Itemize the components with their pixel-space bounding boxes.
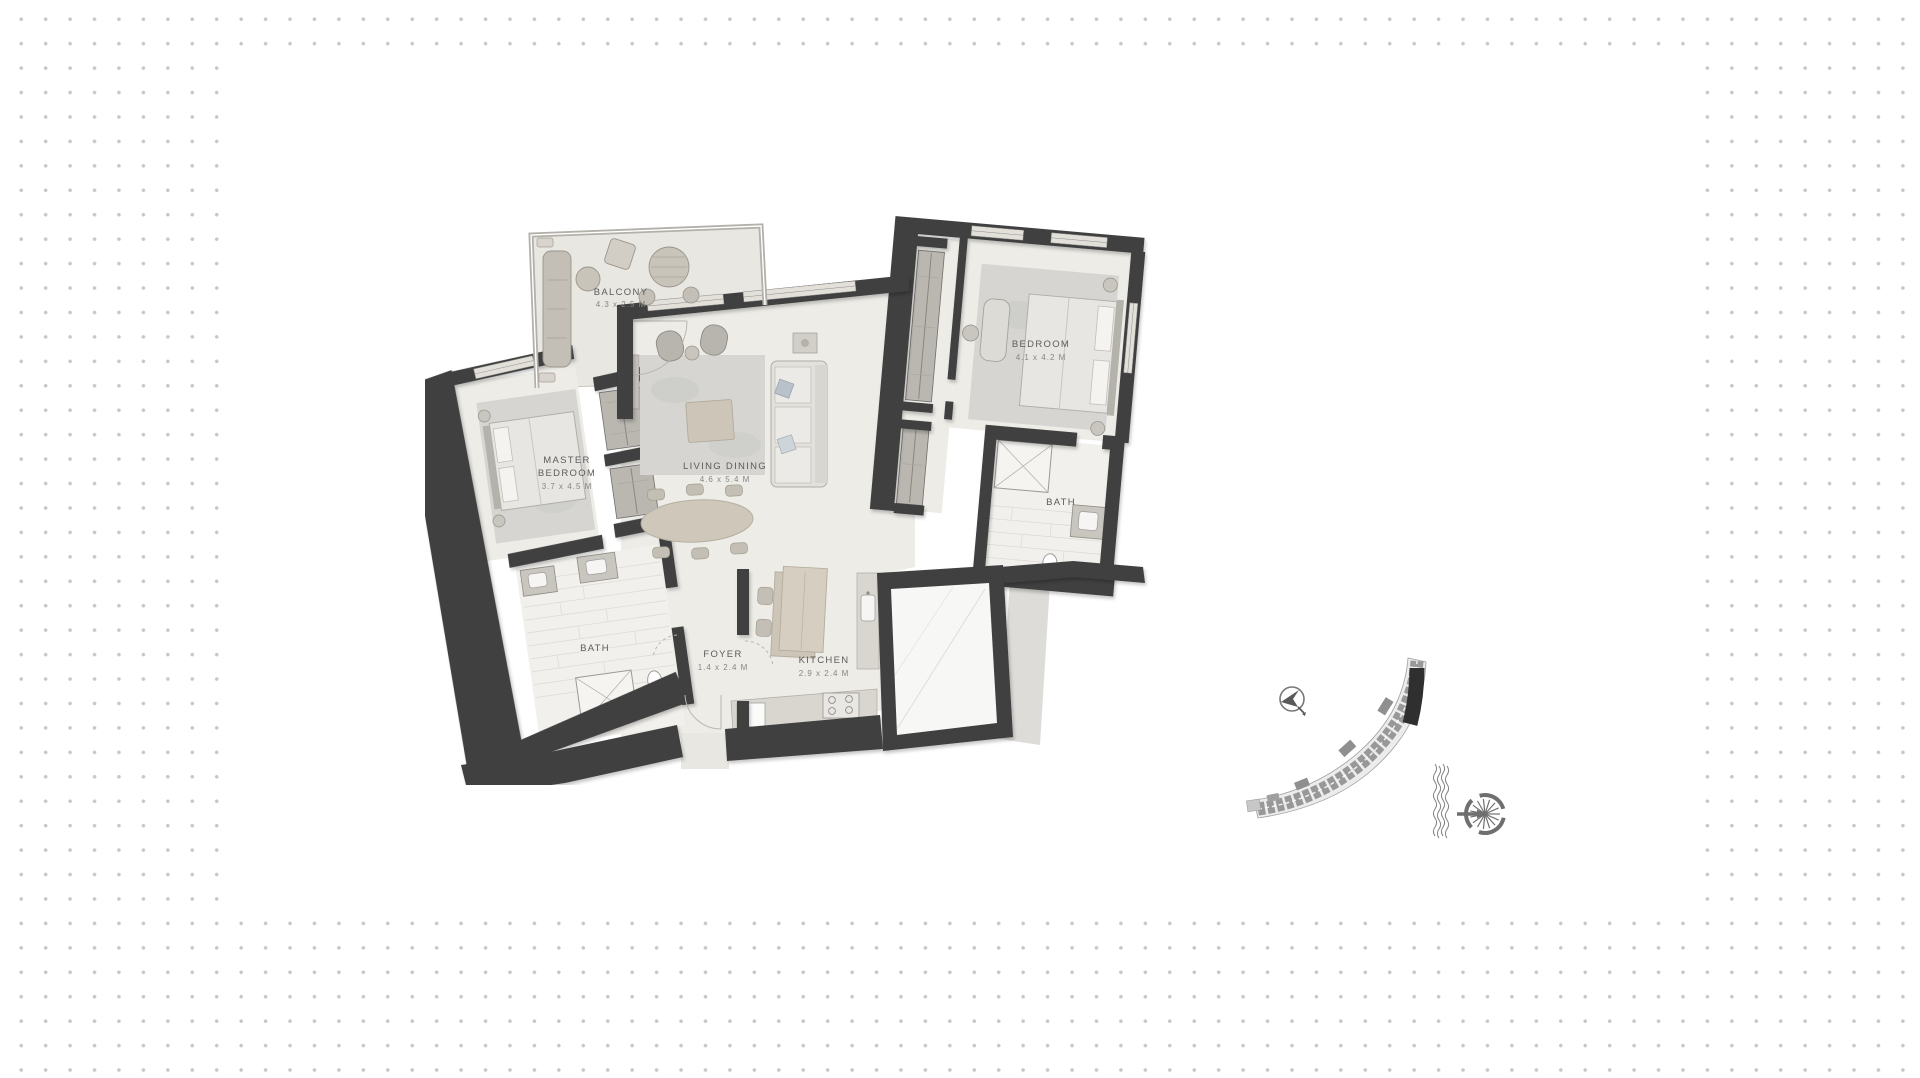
- dining-chair: [647, 489, 665, 501]
- living-dining-dims: 4.6 x 5.4 M: [700, 475, 751, 484]
- balcony-label: BALCONY: [594, 287, 649, 298]
- dining-chair: [652, 546, 670, 558]
- dining-chair: [725, 485, 743, 497]
- coffee-table: [686, 399, 735, 442]
- foyer-label: FOYER: [703, 649, 742, 660]
- foyer-dims: 1.4 x 2.4 M: [698, 663, 749, 672]
- floor-plan: BALCONY 4.3 x 2.5 M LIVING DINING 4.6 x …: [425, 205, 1165, 785]
- site-plan: [1235, 616, 1515, 866]
- service-shaft-interior: [891, 583, 997, 735]
- kitchen-sink: [861, 595, 875, 621]
- living-dining-label: LIVING DINING: [683, 461, 767, 472]
- island-chair: [756, 619, 772, 637]
- side-table: [685, 346, 699, 360]
- kitchen-dims: 2.9 x 2.4 M: [799, 669, 850, 678]
- island-chair: [757, 587, 773, 605]
- stove: [823, 693, 859, 718]
- shoreline-waves-icon: [1433, 764, 1448, 838]
- balcony-dims: 4.3 x 2.5 M: [596, 300, 647, 309]
- highlighted-unit: [1410, 668, 1417, 724]
- building-crescent-plan: [1246, 658, 1426, 818]
- master-bedroom-dims: 3.7 x 4.5 M: [542, 482, 593, 491]
- kitchen-label: KITCHEN: [799, 655, 850, 666]
- master-bath-label: BATH: [580, 643, 610, 654]
- dining-chair: [730, 542, 748, 554]
- north-arrow-icon: [1280, 687, 1306, 716]
- master-bedroom-label: MASTER: [543, 455, 590, 466]
- entry-stub-floor: [681, 733, 729, 769]
- bedroom-bath-label: BATH: [1046, 497, 1076, 508]
- master-bedroom-label: BEDROOM: [538, 468, 596, 479]
- palm-jumeirah-icon: [1457, 790, 1509, 838]
- planter: [539, 373, 555, 382]
- dining-chair: [686, 484, 704, 496]
- bedroom-chaise: [979, 298, 1010, 362]
- dining-chair: [691, 547, 709, 559]
- dining-set: [639, 481, 755, 562]
- bedroom-label: BEDROOM: [1012, 339, 1070, 350]
- bedroom-dims: 4.1 x 4.2 M: [1016, 353, 1067, 362]
- planter: [537, 238, 553, 247]
- balcony-chair: [683, 287, 699, 303]
